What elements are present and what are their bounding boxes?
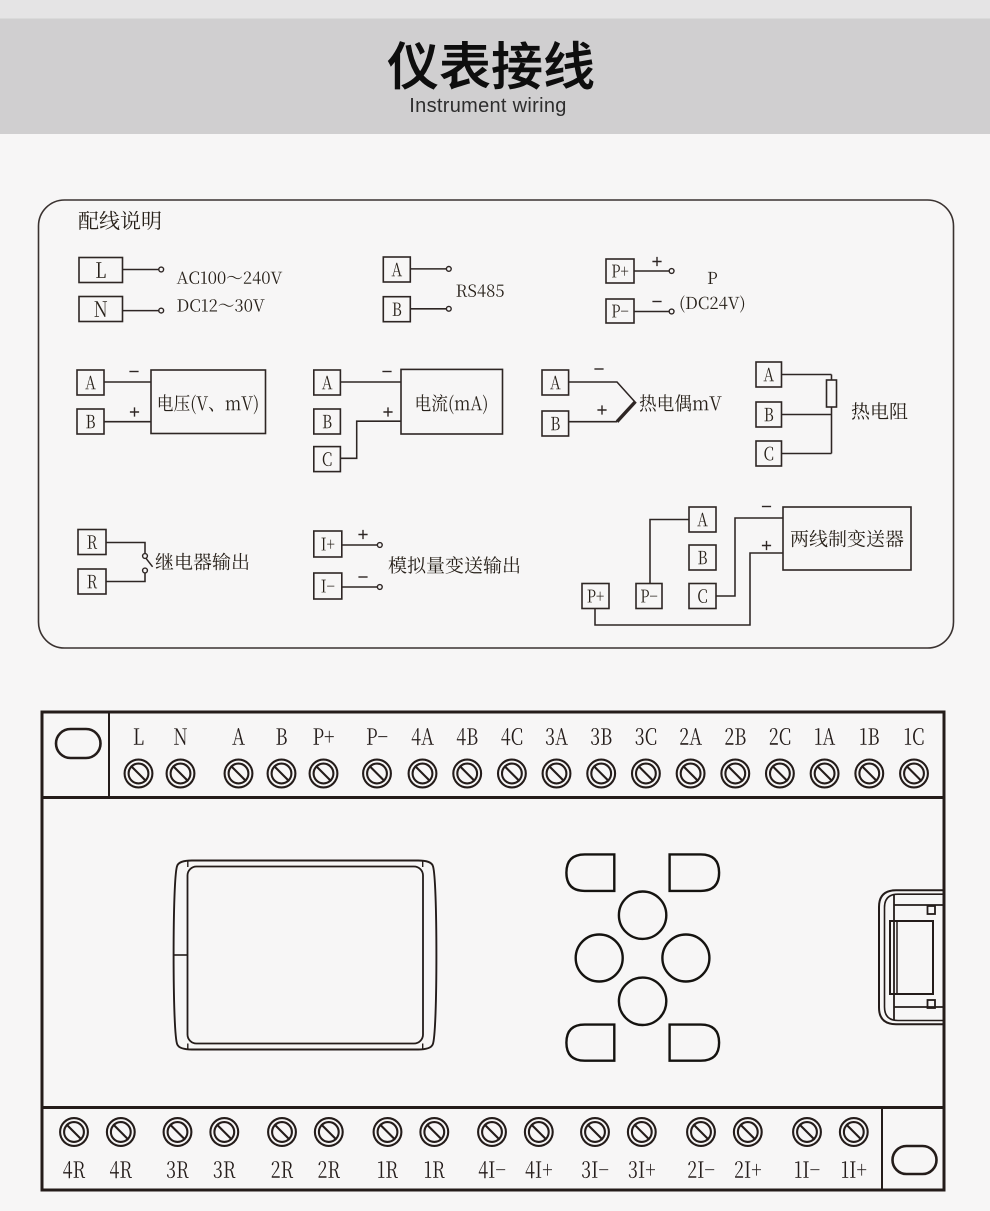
svg-text:Instrument wiring: Instrument wiring xyxy=(409,95,566,117)
